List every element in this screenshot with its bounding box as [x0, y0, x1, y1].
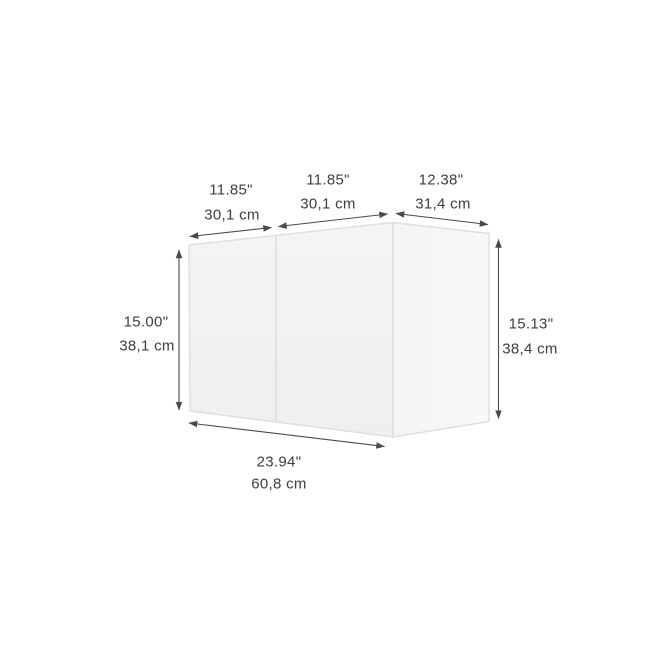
dimension-line-top-left-width [190, 228, 272, 237]
dimension-diagram-canvas: 11.85" 30,1 cm 11.85" 30,1 cm 12.38" 31,… [0, 0, 660, 660]
dimension-label-top-left-inches: 11.85" [209, 183, 253, 198]
dimension-label-bottom-cm: 60,8 cm [251, 477, 306, 492]
dimension-label-left-inches: 15.00" [124, 315, 169, 330]
dimension-label-right-inches: 15.13" [509, 317, 554, 332]
dimension-label-top-middle-inches: 11.85" [306, 173, 350, 188]
cabinet-line-drawing [0, 0, 660, 660]
dimension-label-top-right-inches: 12.38" [419, 173, 464, 188]
dimension-label-top-right-cm: 31,4 cm [415, 197, 470, 212]
dimension-line-top-right-depth [396, 214, 488, 225]
dimension-label-top-left-cm: 30,1 cm [204, 208, 259, 223]
dimension-label-left-cm: 38,1 cm [119, 339, 174, 354]
dimension-label-bottom-inches: 23.94" [257, 455, 302, 470]
cabinet-front-face [189, 223, 393, 438]
dimension-label-right-cm: 38,4 cm [502, 342, 557, 357]
dimension-label-top-middle-cm: 30,1 cm [300, 197, 355, 212]
cabinet-side-face [393, 223, 489, 438]
